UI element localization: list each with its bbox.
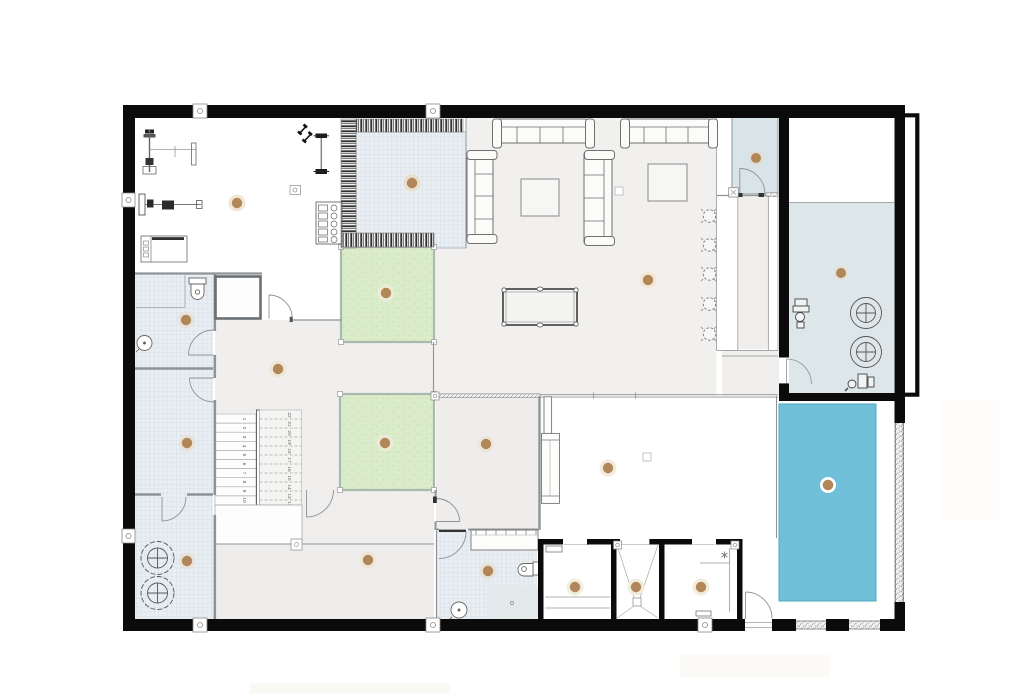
svg-text:4: 4 (241, 445, 247, 448)
svg-text:13: 13 (286, 493, 292, 499)
svg-text:20: 20 (286, 430, 292, 436)
svg-text:19: 19 (286, 439, 292, 445)
svg-text:5: 5 (241, 454, 247, 457)
svg-text:21: 21 (286, 421, 292, 427)
svg-text:18: 18 (286, 448, 292, 454)
svg-text:22: 22 (286, 412, 292, 418)
svg-text:7: 7 (241, 472, 247, 475)
svg-text:6: 6 (241, 463, 247, 466)
svg-text:16: 16 (286, 466, 292, 472)
svg-text:14: 14 (286, 484, 292, 490)
svg-text:10: 10 (241, 497, 247, 503)
svg-text:17: 17 (286, 457, 292, 463)
svg-text:15: 15 (286, 475, 292, 481)
svg-text:1: 1 (241, 418, 247, 421)
svg-text:9: 9 (241, 490, 247, 493)
svg-text:2: 2 (241, 427, 247, 430)
svg-text:3: 3 (241, 436, 247, 439)
svg-text:8: 8 (241, 481, 247, 484)
